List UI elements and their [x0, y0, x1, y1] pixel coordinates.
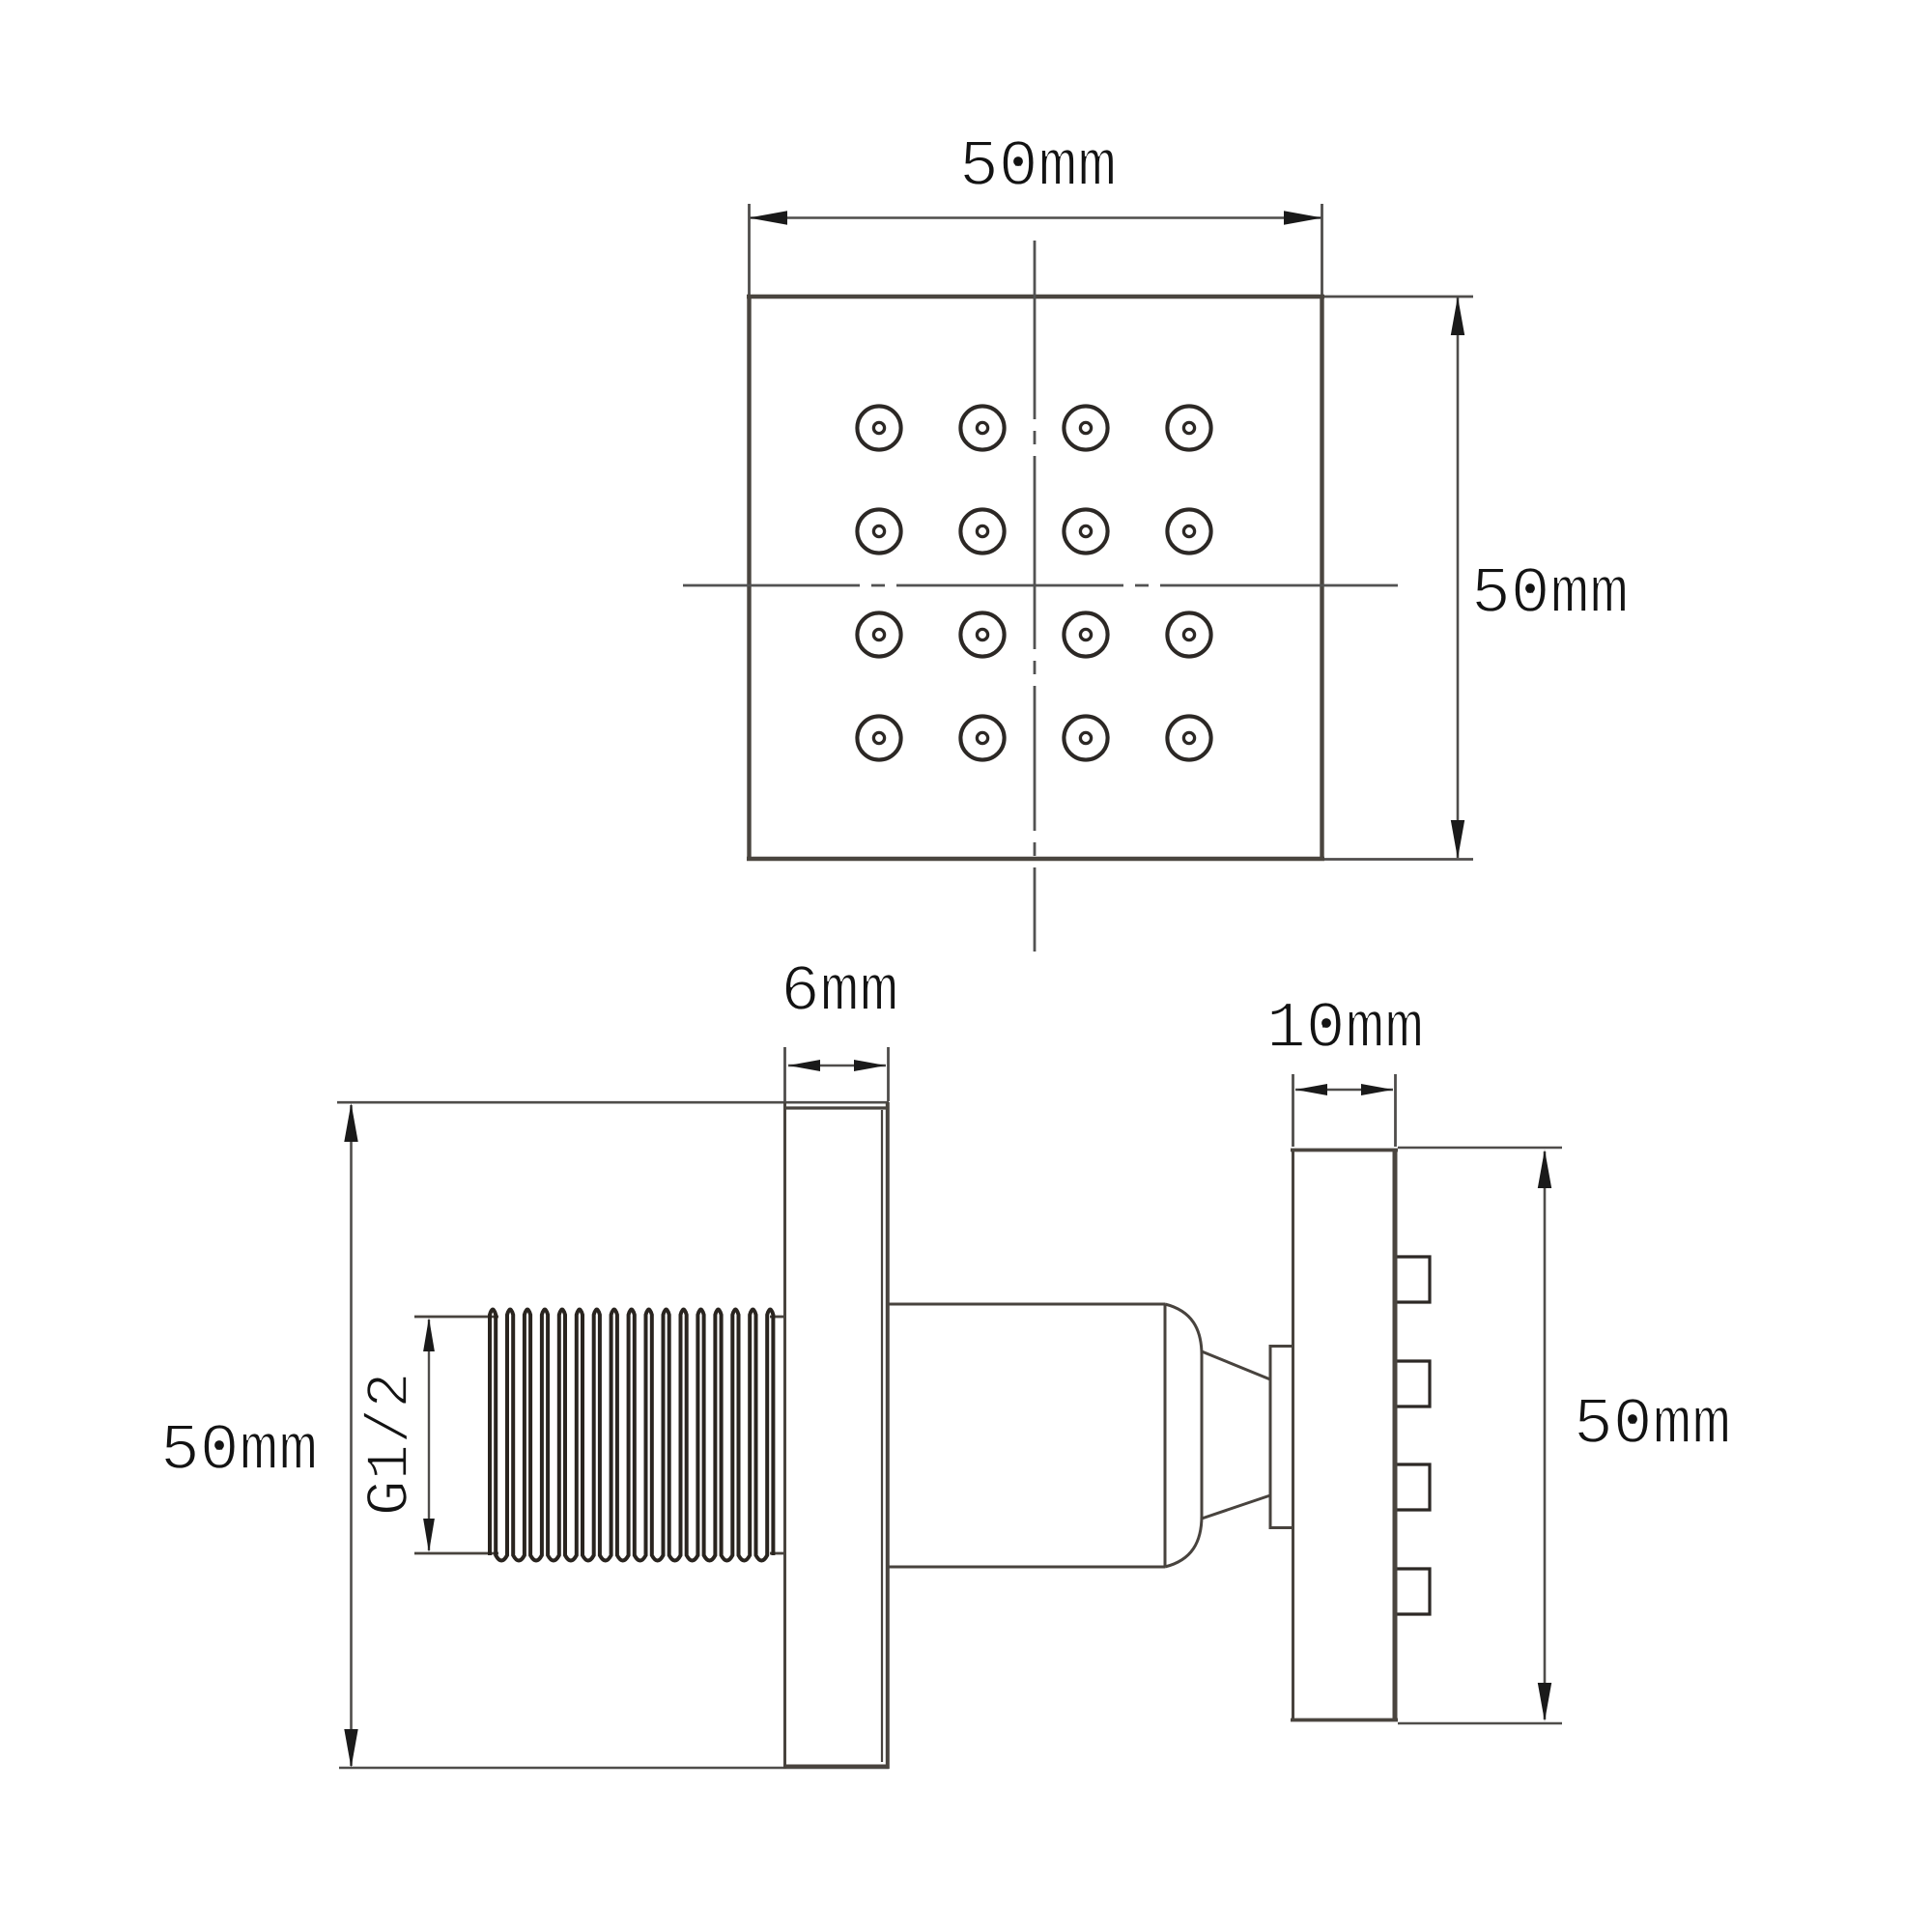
svg-text:50mm: 50mm [160, 1414, 318, 1489]
svg-text:10mm: 10mm [1266, 992, 1424, 1066]
svg-text:50mm: 50mm [959, 130, 1117, 205]
svg-text:50mm: 50mm [1471, 557, 1629, 632]
svg-text:50mm: 50mm [1574, 1388, 1731, 1463]
svg-text:6mm: 6mm [781, 955, 898, 1030]
svg-text:G1/2: G1/2 [356, 1373, 425, 1517]
